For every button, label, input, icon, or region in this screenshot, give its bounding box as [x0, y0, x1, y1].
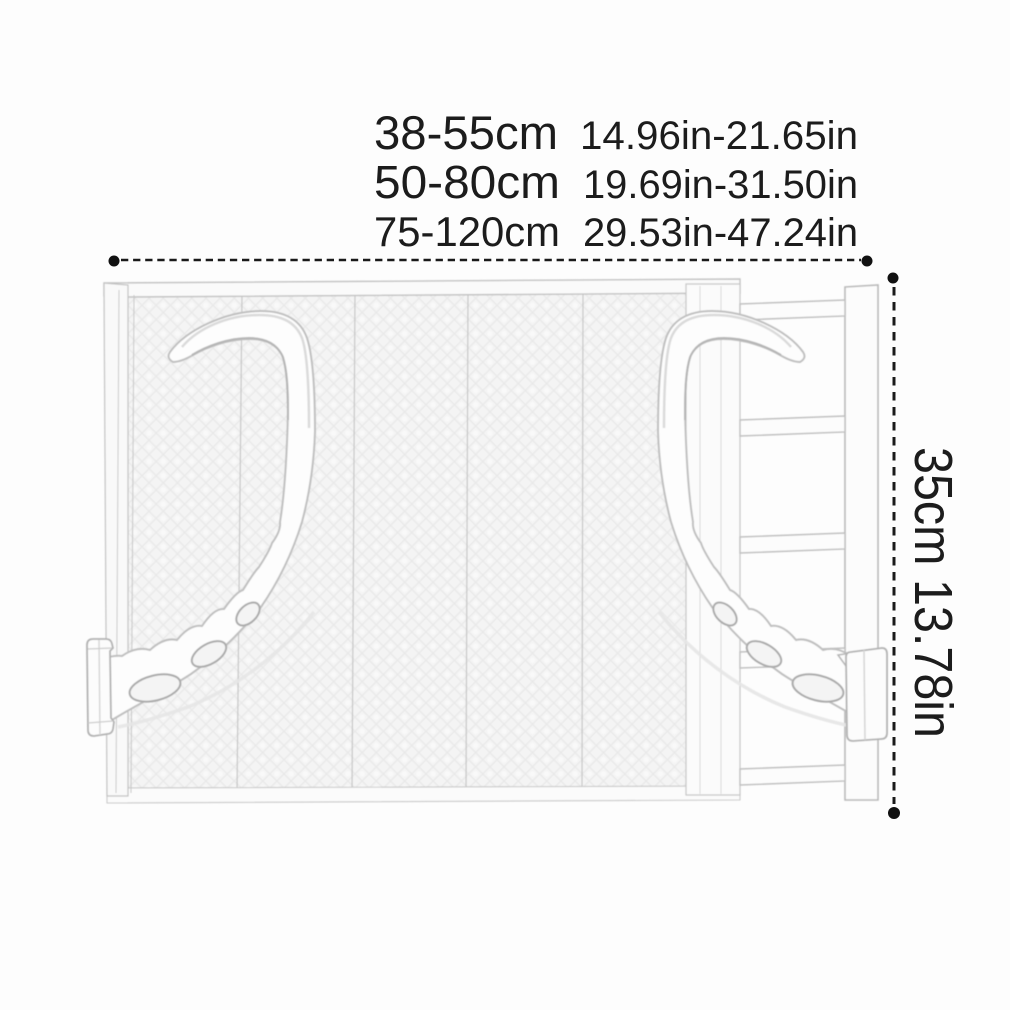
- svg-text:35cm 13.78in: 35cm 13.78in: [903, 447, 963, 738]
- svg-text:19.69in-31.50in: 19.69in-31.50in: [583, 163, 858, 207]
- svg-text:29.53in-47.24in: 29.53in-47.24in: [583, 211, 858, 255]
- svg-text:14.96in-21.65in: 14.96in-21.65in: [580, 114, 858, 158]
- svg-text:50-80cm: 50-80cm: [374, 156, 560, 208]
- svg-text:75-120cm: 75-120cm: [374, 208, 560, 255]
- svg-text:38-55cm: 38-55cm: [374, 106, 558, 159]
